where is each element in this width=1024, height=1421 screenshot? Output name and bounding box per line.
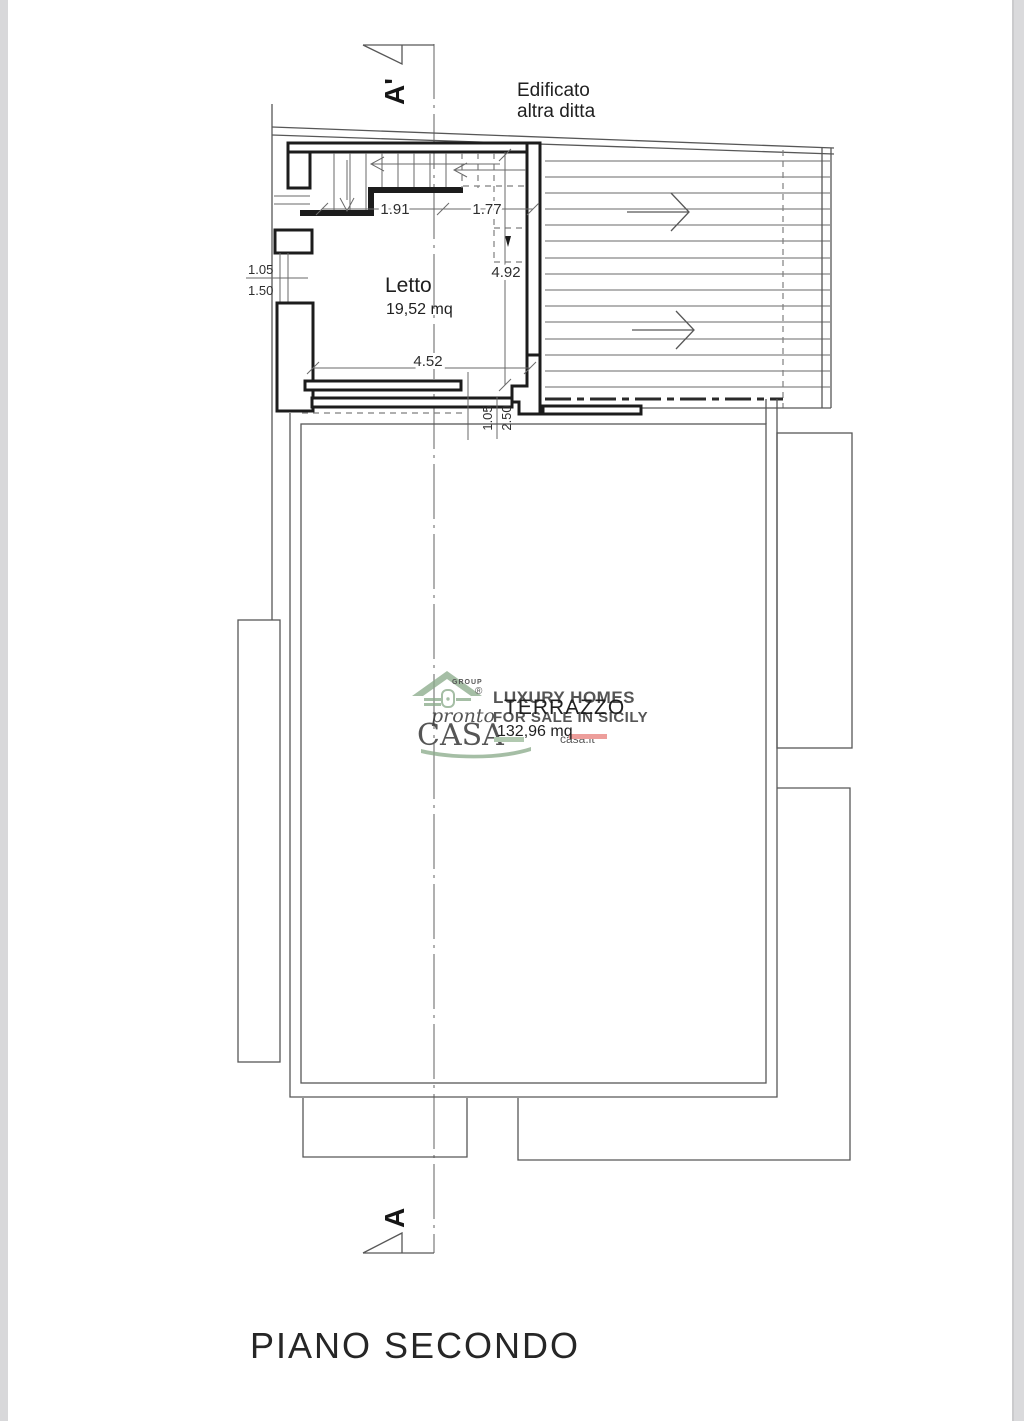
plot-boundary [272,104,834,620]
dimension-room-width: 4.52 [307,353,536,374]
section-marker-bottom: A [363,1208,434,1253]
right-annex-outline-upper [777,433,852,748]
neighbor-label-line2: altra ditta [517,101,596,122]
dim-terrace-door-lower: 2.50 [499,405,514,430]
logo-brand-caps: CASA [417,718,504,753]
section-marker-top-label: A' [379,78,410,105]
section-marker-bottom-label: A [379,1208,410,1228]
dim-stair-right: 1.77 [472,201,501,218]
scan-edge-left [0,0,8,1421]
dim-left-window-upper: 1.05 [248,262,273,277]
dimension-room-depth: 4.92 [491,149,520,391]
scan-edge-right [1012,0,1024,1421]
terrace-door-pier [512,355,540,414]
right-annex-outline-lower [518,788,850,1160]
neighbor-label-line1: Edificato [517,80,590,101]
dim-left-window-lower: 1.50 [248,283,273,298]
stair-arrow-start [340,160,354,211]
stair-arrow-second-flight [454,163,526,177]
neighbor-building-label: Edificato altra ditta [517,80,596,122]
room-terrazzo-area: 132,96 mq [497,723,573,740]
section-marker-top: A' [363,45,434,105]
dim-stair-left: 1.91 [380,201,409,218]
room-letto-name: Letto [385,274,432,297]
floor-plan-page: A' A Edificato altra ditta [0,0,1024,1421]
left-annex-outline [238,620,280,1062]
adjacent-structures [238,433,852,1160]
room-letto-area: 19,52 mq [386,301,453,318]
room-letto-label: Letto 19,52 mq [385,274,453,318]
room-terrazzo-name: TERRAZZO [504,696,625,719]
roof-hatch-area [545,147,831,408]
roof-slope-arrow-2 [632,311,694,349]
dimension-left-window: 1.05 1.50 [246,262,308,298]
terrace-outline [290,399,777,1097]
dim-room-depth: 4.92 [491,264,520,281]
stair-arrow-upper-flight [371,157,500,171]
logo-registered-mark: ® [475,686,483,697]
watermark-flag-red [569,734,607,739]
dim-room-width: 4.52 [413,353,442,370]
stair-direction-tick [505,236,511,247]
bottom-annex-outline [303,1098,467,1157]
logo-group-label: GROUP [452,679,483,686]
floor-plan-drawing: A' A Edificato altra ditta [0,0,1024,1421]
room-terrazzo-label: TERRAZZO 132,96 mq [497,696,625,740]
dim-terrace-door-upper: 1.05 [480,405,495,430]
bedroom-walls [274,143,641,414]
page-title: PIANO SECONDO [250,1325,580,1366]
